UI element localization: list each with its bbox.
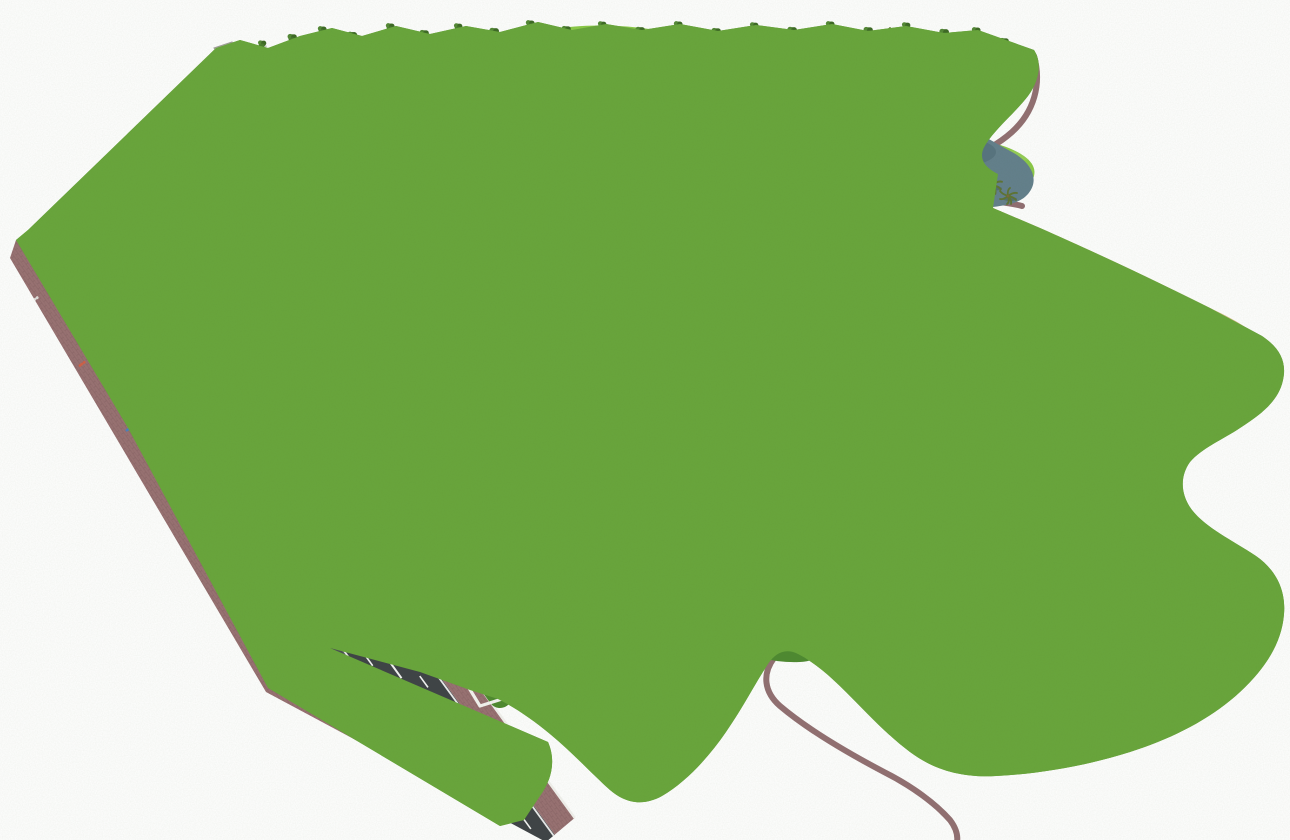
masterplan-illustration [0, 0, 1290, 840]
grass-grain [0, 0, 1290, 840]
render-canvas [0, 0, 1290, 840]
